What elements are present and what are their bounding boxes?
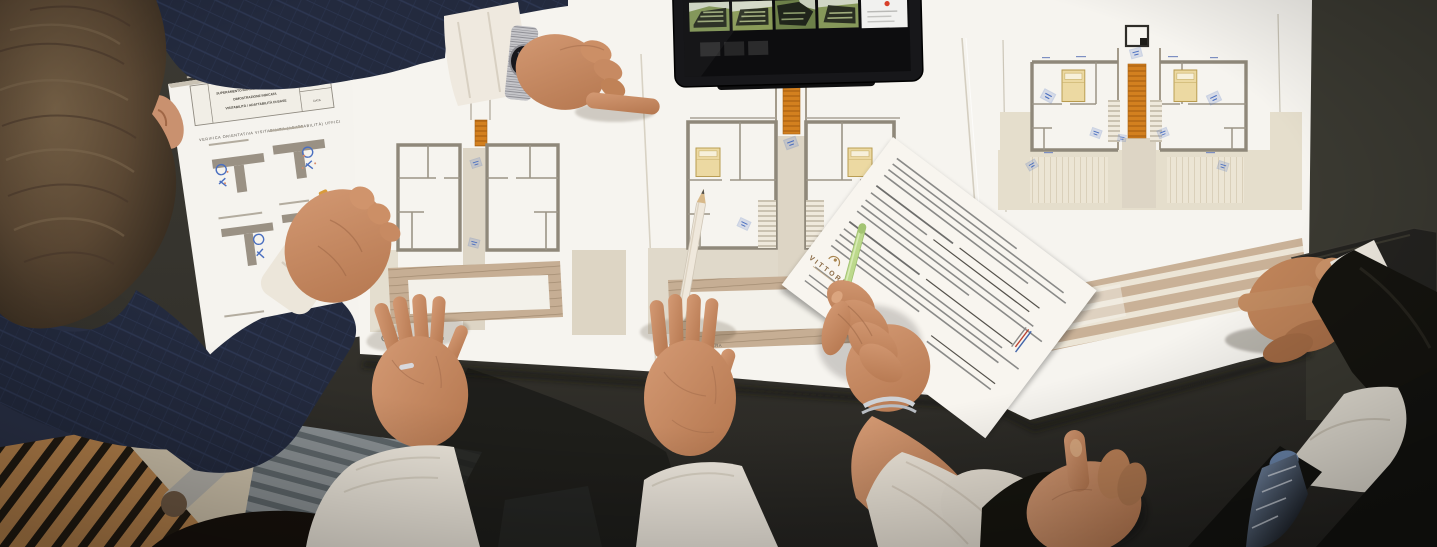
building-render-thumbnail-3 bbox=[775, 0, 816, 30]
gallery-side-panel bbox=[861, 0, 908, 28]
chair-armrest-cap bbox=[161, 491, 187, 517]
roof-access-box bbox=[1126, 26, 1148, 46]
tablet bbox=[673, 0, 924, 91]
photo-design-meeting: SUPERAMENTO BARRIERE ARCHITETTONICHE DIM… bbox=[0, 0, 1437, 547]
building-render-thumbnail-4 bbox=[818, 0, 859, 28]
